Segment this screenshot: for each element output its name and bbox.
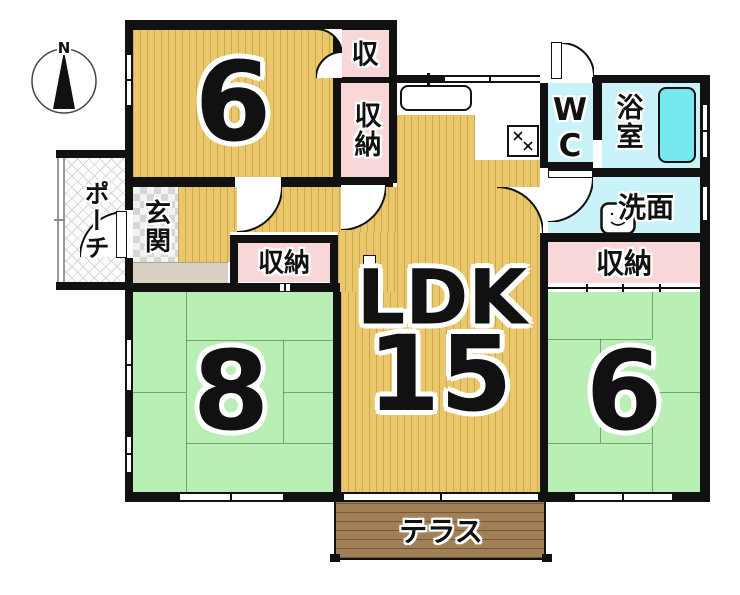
- sliding-door-tick: [284, 283, 286, 292]
- bedroom-right-size: 6: [586, 327, 663, 455]
- window-tick: [125, 453, 133, 455]
- wall-segment: [593, 83, 602, 140]
- closet-east-label: 収納: [596, 242, 652, 282]
- kitchen-counter: [400, 85, 472, 111]
- wall-segment: [125, 20, 397, 30]
- floor-plan: N 6 8 6 LDK 15 玄関 ポーチ WC 浴室 洗面 収 収納 収納 収…: [0, 0, 740, 595]
- hallway-floor-lower: [178, 232, 230, 262]
- tatami-line: [186, 292, 187, 492]
- window-tick: [230, 492, 232, 502]
- door-arc: [316, 52, 342, 78]
- closet-top-large-label: 収納: [346, 101, 385, 159]
- washroom-label: 洗面: [618, 186, 674, 226]
- door-leaf-back: [551, 42, 562, 79]
- wall-segment: [540, 83, 548, 168]
- terrace-label: テラス: [399, 510, 482, 550]
- ldk-size: 15: [368, 313, 513, 435]
- wc-label: WC: [552, 92, 588, 164]
- entrance-label: 玄関: [138, 199, 175, 255]
- wall-segment: [333, 292, 341, 492]
- porch-railing-tick: [54, 219, 65, 221]
- door-arc: [237, 187, 282, 232]
- wall-segment: [389, 20, 397, 183]
- closet-top-small-label: 収: [352, 33, 379, 72]
- wall-segment: [56, 282, 128, 290]
- tatami-line: [133, 392, 186, 393]
- door-arc: [548, 178, 593, 222]
- compass-north-label: N: [58, 39, 71, 57]
- bedroom-top-size: 6: [195, 38, 272, 166]
- door-gap-hall: [235, 177, 281, 187]
- door-arc: [341, 185, 386, 230]
- terrace-post: [542, 554, 552, 562]
- tatami-line: [283, 392, 333, 393]
- sliding-door-tick: [659, 284, 661, 292]
- window-tick: [125, 79, 133, 81]
- window-tick: [440, 492, 442, 502]
- bedroom-left-size: 8: [193, 327, 270, 455]
- wall-segment: [330, 235, 338, 290]
- entrance-step: [133, 262, 228, 284]
- wall-segment: [333, 77, 397, 83]
- stove-icon: [507, 125, 539, 157]
- door-arc-back: [562, 43, 594, 77]
- door-gap-bath: [593, 140, 602, 168]
- window-tick: [701, 130, 709, 132]
- door-arc: [497, 187, 543, 233]
- window-kitchen: [445, 75, 540, 83]
- door-leaf-front: [116, 211, 127, 258]
- bathroom-label: 浴室: [608, 93, 647, 151]
- wall-segment: [230, 235, 238, 290]
- wall-segment: [56, 150, 128, 158]
- sliding-door-tick: [586, 284, 588, 292]
- wall-segment: [593, 168, 708, 177]
- bathtub: [658, 87, 696, 163]
- window-washroom: [701, 187, 709, 220]
- sliding-door-tick: [622, 284, 624, 292]
- porch-label: ポーチ: [77, 181, 113, 262]
- window-tick: [125, 364, 133, 366]
- window-tick: [622, 492, 624, 502]
- terrace-post: [330, 554, 340, 562]
- kitchen-faucet: [427, 73, 430, 87]
- closet-middle-label: 収納: [258, 243, 310, 280]
- sliding-door-line: [548, 287, 700, 289]
- window-tick: [489, 75, 491, 83]
- door-leaf-wc: [548, 170, 593, 178]
- wall-segment: [540, 292, 548, 492]
- wall-segment: [125, 283, 340, 292]
